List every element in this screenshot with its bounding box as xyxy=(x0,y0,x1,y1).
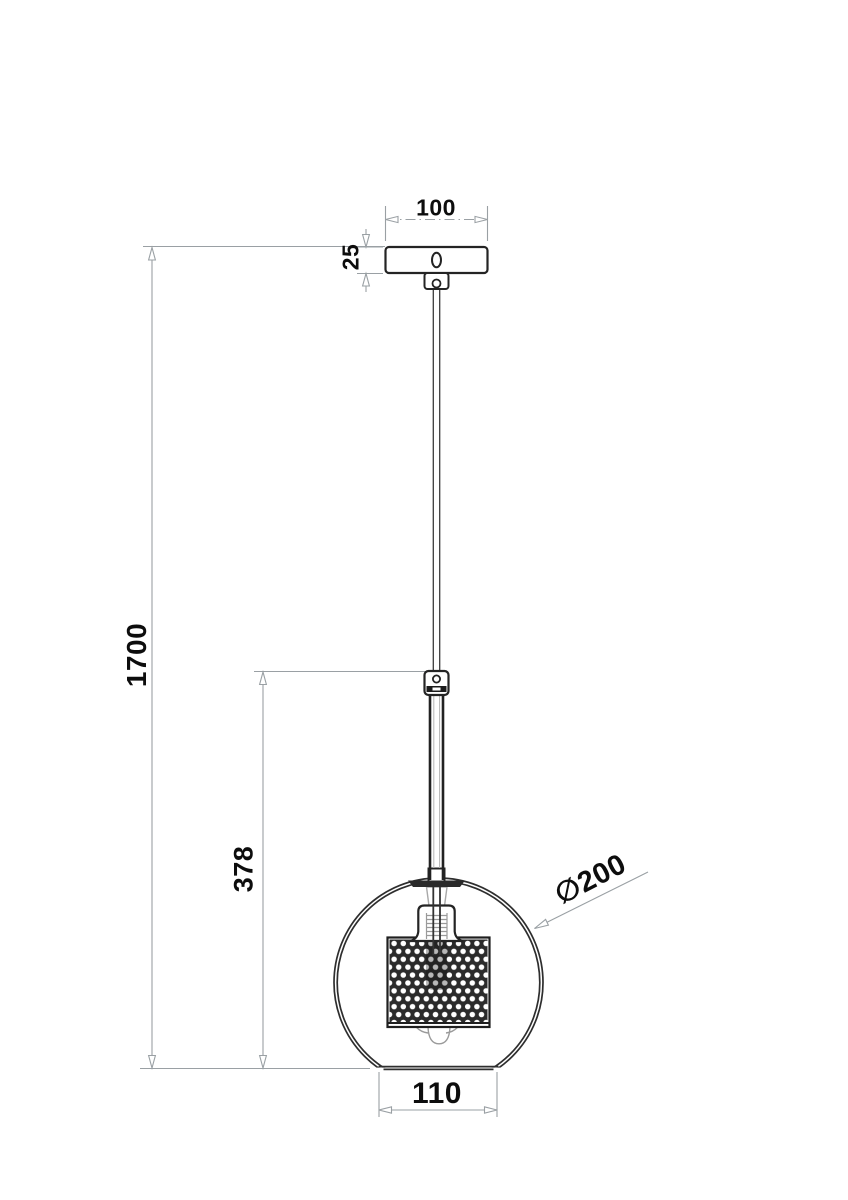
arrowhead-down-378 xyxy=(260,1056,267,1069)
dimension-label-canopy-height: 25 xyxy=(340,244,363,271)
arrowhead-up-25 xyxy=(363,274,370,287)
technical-drawing-svg xyxy=(0,0,848,1200)
arrowhead-up-378 xyxy=(260,672,267,685)
arrowhead-up-1700 xyxy=(149,248,156,261)
arrowhead-left-100 xyxy=(386,216,399,222)
arrowhead-leader-diameter xyxy=(535,919,549,928)
connector-band-slot xyxy=(433,688,441,691)
suspension-cable xyxy=(433,289,439,671)
ceiling-canopy xyxy=(386,247,488,289)
sphere-neck-flange xyxy=(408,881,465,888)
socket-assembly xyxy=(408,869,465,956)
arrowhead-right-100 xyxy=(475,216,488,222)
connector-screw xyxy=(433,675,440,682)
technical-drawing-page: 100 25 1700 378 110 ∅200 xyxy=(0,0,848,1200)
canopy-mounting-slot xyxy=(432,253,441,268)
arrowhead-right-110 xyxy=(485,1107,498,1113)
socket-neck xyxy=(427,887,448,906)
dimension-label-opening-width: 110 xyxy=(412,1079,462,1109)
dimension-label-canopy-width: 100 xyxy=(416,197,456,220)
socket-shadow-through-mesh xyxy=(426,940,447,990)
arrowhead-down-1700 xyxy=(149,1056,156,1069)
cable-connector xyxy=(425,671,449,695)
suspension-rod xyxy=(430,694,443,880)
arrowhead-down-25 xyxy=(363,235,370,248)
dimension-label-rod-length: 378 xyxy=(231,846,258,893)
dimension-label-overall-height: 1700 xyxy=(123,623,151,687)
cord-grip-screw xyxy=(433,280,441,288)
arrowhead-left-110 xyxy=(379,1107,392,1113)
mesh-cylinder xyxy=(388,938,490,1028)
bulb-bottom-arc xyxy=(428,1027,450,1044)
